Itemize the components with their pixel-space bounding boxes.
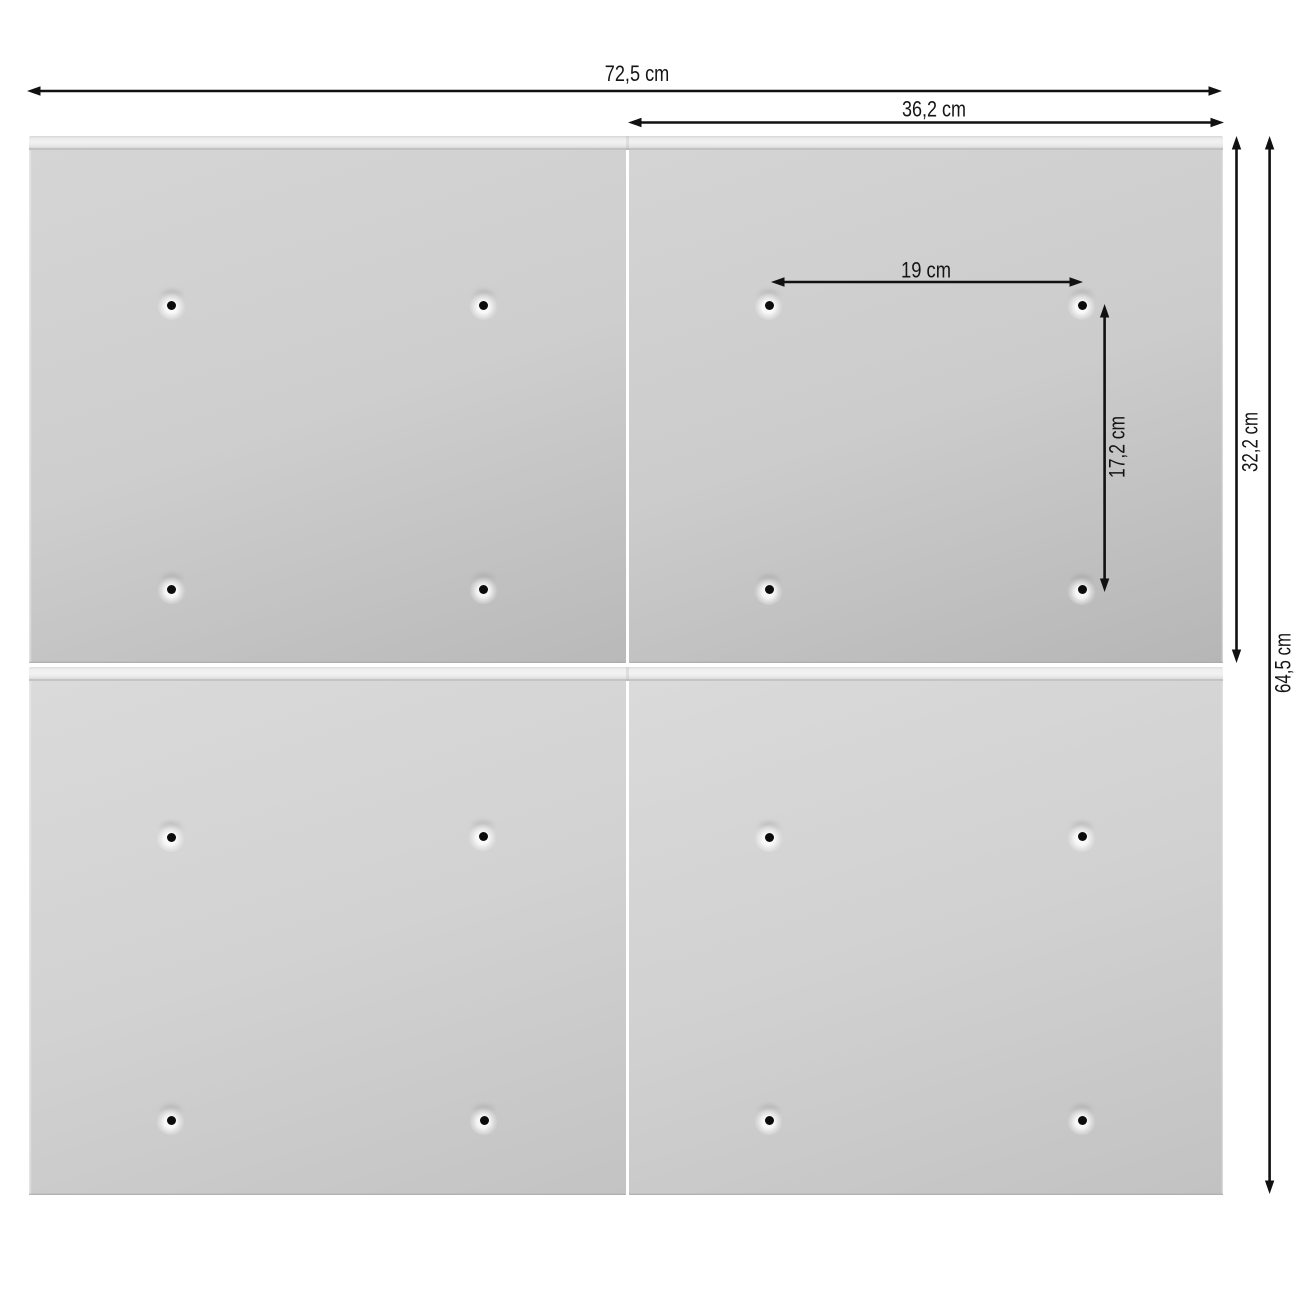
svg-text:64,5 cm: 64,5 cm [1271,633,1296,693]
svg-text:17,2 cm: 17,2 cm [1105,416,1130,478]
svg-text:32,2 cm: 32,2 cm [1238,412,1263,472]
svg-text:36,2 cm: 36,2 cm [902,97,966,122]
svg-text:19 cm: 19 cm [901,258,951,283]
svg-text:72,5 cm: 72,5 cm [605,61,670,86]
